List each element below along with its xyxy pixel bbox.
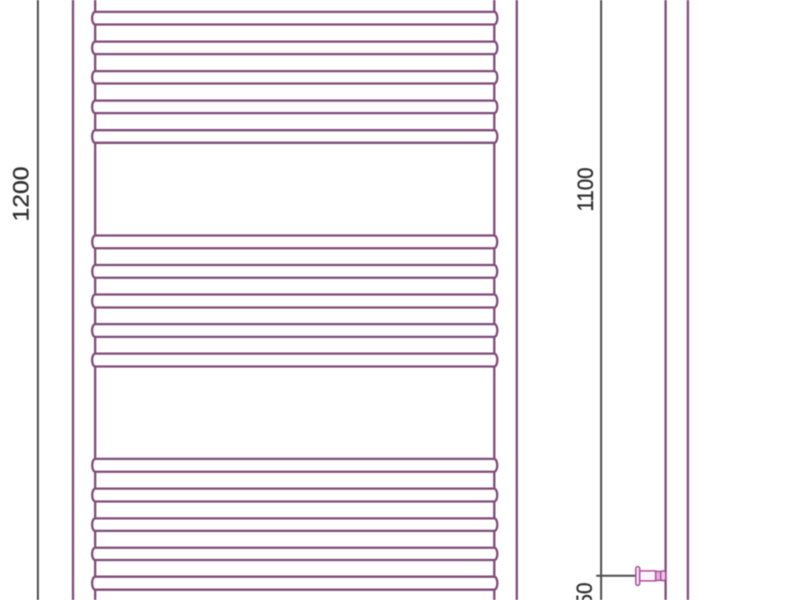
svg-text:1200: 1200 <box>9 167 34 222</box>
svg-text:1100: 1100 <box>573 168 598 212</box>
svg-text:50: 50 <box>572 583 597 600</box>
